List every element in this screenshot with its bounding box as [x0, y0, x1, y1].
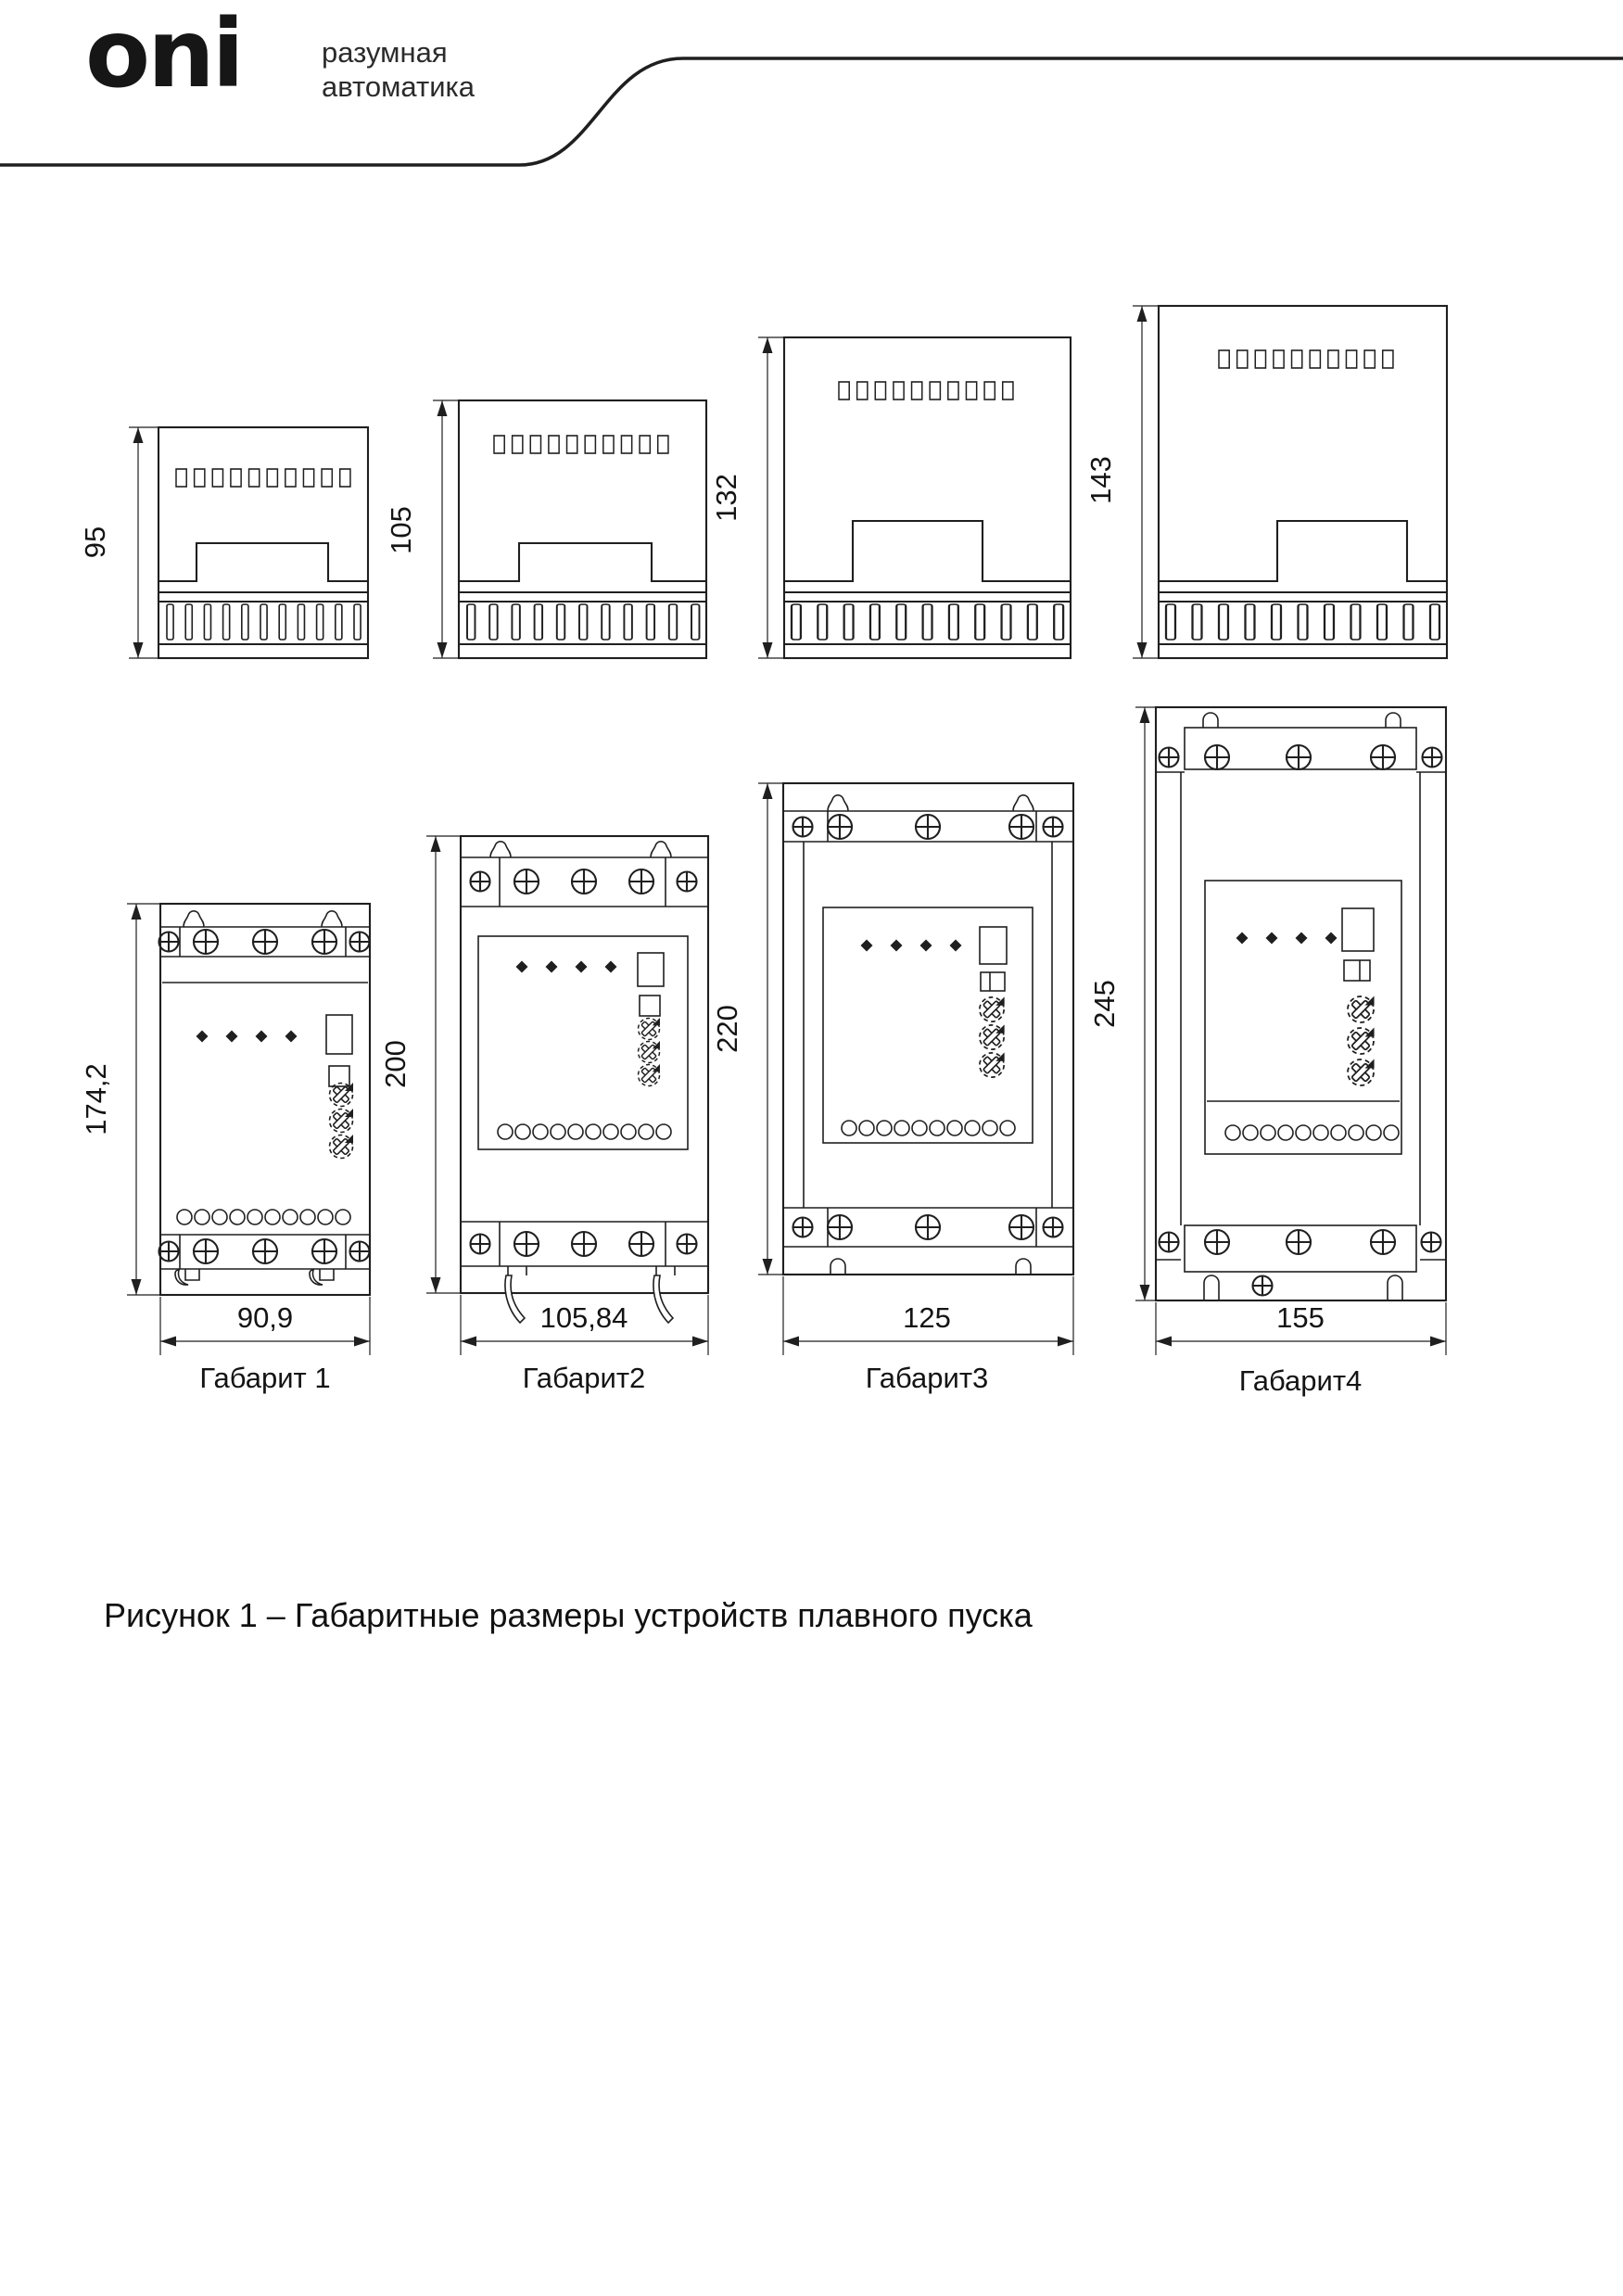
led-indicator-row: [1236, 932, 1337, 944]
header-divider-line: [0, 58, 1623, 165]
enclosure-outline: [461, 836, 708, 1293]
screw-icon: [916, 815, 940, 839]
enclosure-outline: [783, 783, 1073, 1275]
dimension-label: 245: [1088, 980, 1121, 1028]
screw-icon: [1423, 748, 1442, 767]
screw-icon: [312, 930, 336, 954]
front-panel-inset: [1205, 881, 1401, 1154]
screw-icon: [1205, 745, 1229, 769]
potentiometer-icon: [639, 1064, 660, 1085]
screw-icon: [253, 930, 277, 954]
screw-icon: [793, 1218, 813, 1237]
side-view-1: 95: [79, 427, 368, 658]
vent-slots-row: [1219, 350, 1393, 368]
potentiometer-icon: [980, 1024, 1005, 1049]
potentiometer-icon: [639, 1018, 660, 1039]
front-view-3: 220 125 Габарит3: [711, 783, 1073, 1394]
figure-caption: Рисунок 1 – Габаритные размеры устройств…: [104, 1596, 1033, 1635]
screw-icon: [629, 869, 653, 894]
vent-slots-row: [839, 382, 1013, 400]
screw-icon: [1371, 1230, 1395, 1254]
terminal-holes-row: [1225, 1125, 1399, 1140]
height-dimension: [433, 400, 459, 658]
display-window: [326, 1015, 352, 1054]
side-view-2: 105: [385, 400, 706, 658]
potentiometer-icon: [1348, 1059, 1375, 1085]
technical-drawing-canvas: 95 105: [0, 0, 1623, 2296]
terminal-holes-row: [842, 1121, 1015, 1135]
dimension-label: 105: [385, 506, 417, 554]
dimension-label: 143: [1084, 456, 1117, 504]
screw-icon: [1253, 1276, 1273, 1296]
dimension-label: 200: [379, 1040, 412, 1088]
drawing-caption: Габарит 1: [199, 1362, 330, 1394]
heatsink-fins: [1166, 604, 1439, 640]
height-dimension: [127, 904, 160, 1295]
drawing-caption: Габарит2: [523, 1362, 646, 1394]
keyhole-mount-icon: [490, 842, 511, 857]
screw-icon: [194, 930, 218, 954]
vent-slots-row: [494, 436, 668, 453]
drawing-caption: Габарит4: [1239, 1364, 1363, 1397]
dimension-label: 155: [1276, 1301, 1325, 1334]
terminal-holes-row: [177, 1210, 350, 1224]
side-rails: [1156, 772, 1446, 1225]
height-dimension: [129, 427, 158, 658]
dimension-label: 90,9: [237, 1301, 293, 1334]
button-square: [1344, 960, 1370, 981]
heatsink-fins: [167, 604, 361, 640]
led-indicator-row: [196, 1030, 297, 1042]
screw-icon: [514, 1232, 539, 1256]
screw-icon: [1287, 745, 1311, 769]
top-terminal-cover: [1185, 728, 1416, 769]
screw-icon: [793, 818, 813, 837]
led-indicator-row: [515, 960, 616, 972]
screw-icon: [1044, 1218, 1063, 1237]
height-dimension: [426, 836, 461, 1293]
terminal-holes-row: [498, 1124, 671, 1139]
keyhole-mount-icon: [651, 842, 671, 857]
screw-icon: [350, 932, 370, 952]
potentiometer-icon: [639, 1041, 660, 1062]
screw-icon: [1009, 815, 1033, 839]
mount-notch-icon: [831, 1259, 845, 1274]
potentiometer-icon: [980, 1052, 1005, 1077]
screw-icon: [471, 872, 490, 892]
screw-icon: [1287, 1230, 1311, 1254]
screw-icon: [1160, 1233, 1179, 1252]
height-dimension: [758, 337, 784, 658]
screw-icon: [194, 1239, 218, 1263]
vent-slots-row: [176, 469, 350, 487]
dimension-label: 220: [711, 1005, 743, 1053]
screw-icon: [350, 1242, 370, 1262]
screw-icon: [1160, 748, 1179, 767]
side-view-3: 132: [710, 337, 1071, 658]
heatsink-fins: [792, 604, 1063, 640]
din-clip-icon: [175, 1269, 199, 1285]
enclosure-outline: [1156, 707, 1446, 1300]
screw-icon: [1371, 745, 1395, 769]
height-dimension: [1133, 306, 1159, 658]
screw-icon: [1205, 1230, 1229, 1254]
display-window: [980, 927, 1007, 964]
screw-icon: [828, 815, 852, 839]
height-dimension: [1135, 707, 1156, 1300]
din-clip-icon: [653, 1266, 675, 1323]
keyhole-mount-icon: [1013, 795, 1033, 811]
front-view-4: 245 155 Габарит4: [1088, 707, 1446, 1397]
screw-icon: [471, 1235, 490, 1254]
screw-icon: [514, 869, 539, 894]
keyhole-mount-icon: [322, 911, 342, 927]
mount-notch-icon: [1204, 1275, 1219, 1300]
screw-icon: [572, 869, 596, 894]
side-view-1-outline: [158, 427, 368, 658]
keyhole-mount-icon: [1386, 713, 1401, 728]
dimension-label: 105,84: [540, 1301, 628, 1334]
potentiometer-icon: [330, 1135, 354, 1159]
led-indicator-row: [860, 939, 961, 951]
dimension-label: 174,2: [80, 1063, 112, 1135]
screw-icon: [1422, 1233, 1441, 1252]
keyhole-mount-icon: [1203, 713, 1218, 728]
screw-icon: [159, 1242, 179, 1262]
heatsink-fins: [467, 604, 699, 640]
dimension-label: 95: [79, 526, 111, 558]
mount-notch-icon: [1016, 1259, 1031, 1274]
screw-icon: [312, 1239, 336, 1263]
screw-icon: [916, 1215, 940, 1239]
front-view-2: 200 105,84 Габарит2: [379, 836, 708, 1394]
drawing-caption: Габарит3: [866, 1362, 989, 1394]
front-view-1: 174,2 90,9 Габарит 1: [80, 904, 370, 1394]
screw-icon: [1009, 1215, 1033, 1239]
screw-icon: [572, 1232, 596, 1256]
mount-notch-icon: [1388, 1275, 1402, 1300]
screw-icon: [678, 872, 697, 892]
potentiometer-icon: [1348, 996, 1375, 1022]
potentiometer-icon: [980, 996, 1005, 1021]
potentiometer-icon: [330, 1109, 354, 1133]
side-view-4: 143: [1084, 306, 1447, 658]
button-square: [640, 996, 660, 1016]
button-square: [981, 972, 1005, 991]
keyhole-mount-icon: [828, 795, 848, 811]
screw-icon: [1044, 818, 1063, 837]
din-clip-icon: [310, 1269, 334, 1285]
dimension-label: 125: [903, 1301, 951, 1334]
top-terminal-strip: [783, 811, 1073, 1208]
document-page: oni разумная автоматика: [0, 0, 1623, 2296]
potentiometer-icon: [1348, 1027, 1375, 1054]
screw-icon: [678, 1235, 697, 1254]
screw-icon: [828, 1215, 852, 1239]
display-window: [1342, 908, 1374, 951]
display-window: [638, 953, 664, 986]
screw-icon: [159, 932, 179, 952]
screw-icon: [629, 1232, 653, 1256]
din-clip-icon: [505, 1266, 526, 1323]
bottom-terminal-cover: [1185, 1225, 1416, 1272]
screw-icon: [253, 1239, 277, 1263]
height-dimension: [758, 783, 783, 1275]
dimension-label: 132: [710, 474, 742, 522]
keyhole-mount-icon: [184, 911, 204, 927]
